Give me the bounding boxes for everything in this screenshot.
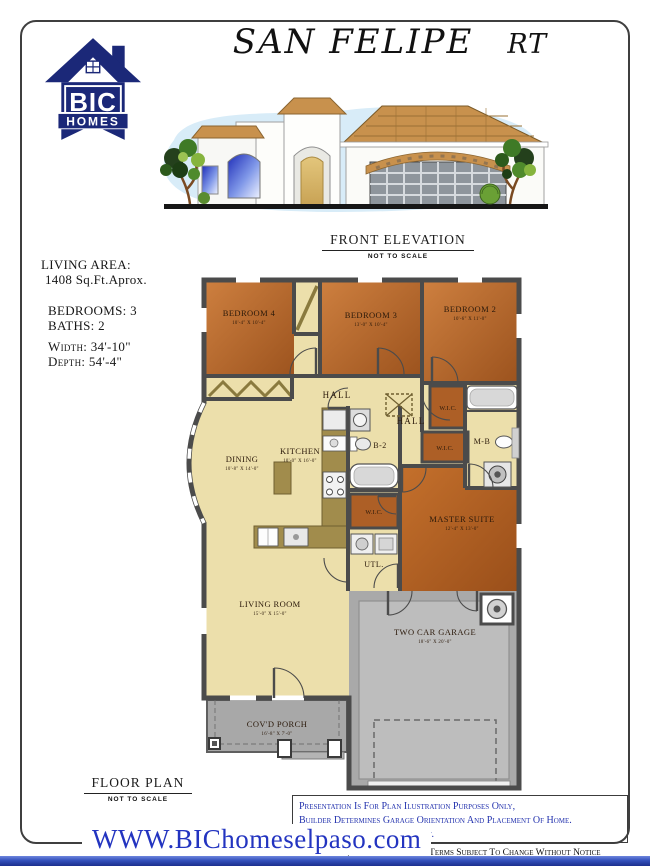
label-wic3: W.I.C. <box>365 509 383 516</box>
label-bedroom4-dims: 10'-4" X 10'-4" <box>232 321 266 326</box>
label-master-suite-dims: 12'-4" X 13'-0" <box>445 527 479 532</box>
baths-count: BATHS: 2 <box>48 319 147 334</box>
logo-base-right <box>103 129 125 140</box>
plan-name: SAN FELIPE <box>233 22 474 62</box>
room-bedroom3 <box>322 282 420 376</box>
flyer-page: SAN FELIPE RT BIC HOMES <box>0 0 650 866</box>
living-area-value: 1408 Sq.Ft.Aprox. <box>45 273 147 288</box>
label-living-room-dims: 15'-0" X 15'-0" <box>253 612 287 617</box>
label-hall1: HALL <box>323 390 352 400</box>
floorplan-caption-label: FLOOR PLAN <box>84 775 193 794</box>
front-elevation-illustration <box>136 86 560 238</box>
label-bath2: B-2 <box>373 441 387 450</box>
water-heater <box>481 594 513 624</box>
label-garage-dims: 18'-6" X 20'-0" <box>418 640 452 645</box>
bottom-bar <box>0 856 650 866</box>
label-dining: DINING <box>226 454 259 464</box>
elevation-caption: FRONT ELEVATION NOT TO SCALE <box>318 231 478 260</box>
info-block: LIVING AREA: 1408 Sq.Ft.Aprox. BEDROOMS:… <box>41 258 147 369</box>
floorplan-caption: FLOOR PLAN NOT TO SCALE <box>80 774 196 803</box>
room-bedroom4 <box>206 282 294 378</box>
page-title: SAN FELIPE RT <box>200 22 580 62</box>
label-porch: COV'D PORCH <box>247 719 307 729</box>
elevation-caption-sub: NOT TO SCALE <box>318 253 478 260</box>
house-entry-tower <box>278 98 346 206</box>
label-bedroom4: BEDROOM 4 <box>223 308 276 318</box>
bedrooms-count: BEDROOMS: 3 <box>48 304 147 319</box>
label-garage: TWO CAR GARAGE <box>394 627 476 637</box>
floorplan-caption-sub: NOT TO SCALE <box>80 796 196 803</box>
room-porch <box>207 700 347 759</box>
logo-window-icon <box>86 61 99 73</box>
label-bedroom2-dims: 10'-6" X 11'-0" <box>453 317 486 322</box>
room-bedroom2 <box>424 282 517 383</box>
plan-width: Width: 34'-10" <box>48 340 147 355</box>
logo-text-homes: HOMES <box>66 114 120 128</box>
label-master-bath: M-B <box>474 437 491 446</box>
plan-depth: Depth: 54'-4" <box>48 355 147 370</box>
label-master-suite: MASTER SUITE <box>429 514 494 524</box>
label-wic1: W.I.C. <box>439 405 457 412</box>
front-door <box>301 157 323 206</box>
disclaimer-line1: Presentation Is For Plan Ilustration Pur… <box>299 800 621 814</box>
label-wic2: W.I.C. <box>436 445 454 452</box>
label-kitchen: KITCHEN <box>280 446 320 456</box>
label-living-room: LIVING ROOM <box>239 599 300 609</box>
plan-name-suffix: RT <box>507 29 547 60</box>
arched-window <box>228 154 260 198</box>
website-link[interactable]: WWW.BIChomeselpaso.com <box>82 824 431 855</box>
elevation-caption-label: FRONT ELEVATION <box>322 232 474 251</box>
label-bedroom3: BEDROOM 3 <box>345 310 397 320</box>
label-dining-dims: 10'-8" X 14'-0" <box>225 467 259 472</box>
ground-line <box>164 204 548 209</box>
bic-homes-logo: BIC HOMES <box>45 36 141 140</box>
label-hall2: HALL <box>397 416 426 426</box>
label-utility: UTL. <box>364 560 384 569</box>
label-porch-dims: 16'-8" X 7'-0" <box>262 732 293 737</box>
label-bedroom2: BEDROOM 2 <box>444 304 496 314</box>
floor-plan: BEDROOM 4 10'-4" X 10'-4" BEDROOM 3 13'-… <box>182 276 527 791</box>
logo-base-left <box>61 129 83 140</box>
label-bedroom3-dims: 13'-0" X 10'-4" <box>354 323 388 328</box>
label-kitchen-dims: 10'-0" X 16'-0" <box>283 459 317 464</box>
living-area-label: LIVING AREA: <box>41 258 147 273</box>
